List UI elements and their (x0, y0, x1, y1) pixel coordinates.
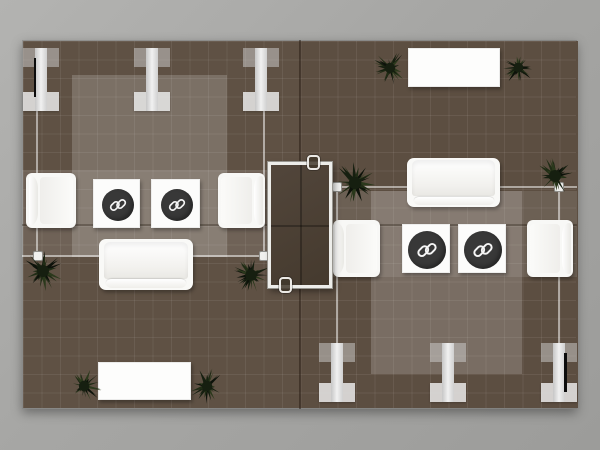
light-bar-icon (564, 353, 567, 392)
logo-table-top (464, 231, 502, 269)
coffee-table-1 (98, 362, 191, 400)
armchair-backrest (335, 223, 344, 273)
logo-table-top (408, 231, 446, 269)
truss-leg-4 (319, 343, 355, 402)
armchair-2 (218, 173, 265, 228)
sofa-1 (99, 239, 193, 290)
brand-logo-icon (107, 194, 129, 216)
logo-table-top (102, 189, 134, 221)
armchair-backrest (254, 176, 263, 224)
truss-stem (255, 48, 267, 111)
armchair-3 (333, 220, 380, 277)
sofa-2 (407, 158, 500, 207)
plant-2 (229, 253, 273, 297)
brand-logo-icon (470, 237, 496, 263)
plant-4 (187, 366, 227, 406)
armchair-seat (530, 224, 560, 273)
sofa-seat-front (414, 197, 494, 205)
armchair-4 (527, 220, 573, 277)
truss-stem (146, 48, 158, 111)
light-bar-icon (34, 58, 37, 97)
truss-leg-1 (23, 48, 59, 111)
plant-5 (370, 48, 410, 88)
logo-side-table-3 (402, 224, 450, 273)
truss-stem (35, 48, 47, 111)
truss-leg-5 (430, 343, 466, 402)
truss-leg-3 (243, 48, 279, 111)
logo-side-table-2 (151, 179, 200, 228)
logo-side-table-1 (93, 179, 140, 228)
truss-stem (442, 343, 454, 402)
logo-side-table-4 (458, 224, 506, 273)
sofa-backrest (104, 242, 189, 279)
armchair-seat (346, 224, 377, 273)
booth-floor-plan (0, 0, 600, 450)
plant-1 (20, 248, 66, 294)
truss-leg-2 (134, 48, 170, 111)
armchair-backrest (562, 223, 571, 273)
table-handle-1 (307, 155, 320, 170)
plant-6 (500, 49, 537, 86)
plant-8 (532, 153, 578, 199)
table-handle-2 (279, 277, 292, 293)
armchair-backrest (29, 176, 39, 224)
conference-table (268, 162, 332, 288)
table-seam-horizontal (271, 225, 329, 227)
armchair-seat (40, 177, 73, 224)
truss-leg-6 (541, 343, 577, 402)
sofa-backrest (412, 160, 496, 196)
sofa-seat-front (106, 279, 187, 288)
brand-logo-icon (414, 237, 440, 263)
plant-3 (64, 366, 104, 406)
logo-table-top (161, 189, 193, 221)
console-table-2 (408, 48, 500, 87)
armchair-1 (26, 173, 76, 228)
brand-logo-icon (166, 194, 188, 216)
plant-7 (331, 159, 379, 207)
truss-stem (331, 343, 343, 402)
armchair-seat (221, 177, 252, 224)
